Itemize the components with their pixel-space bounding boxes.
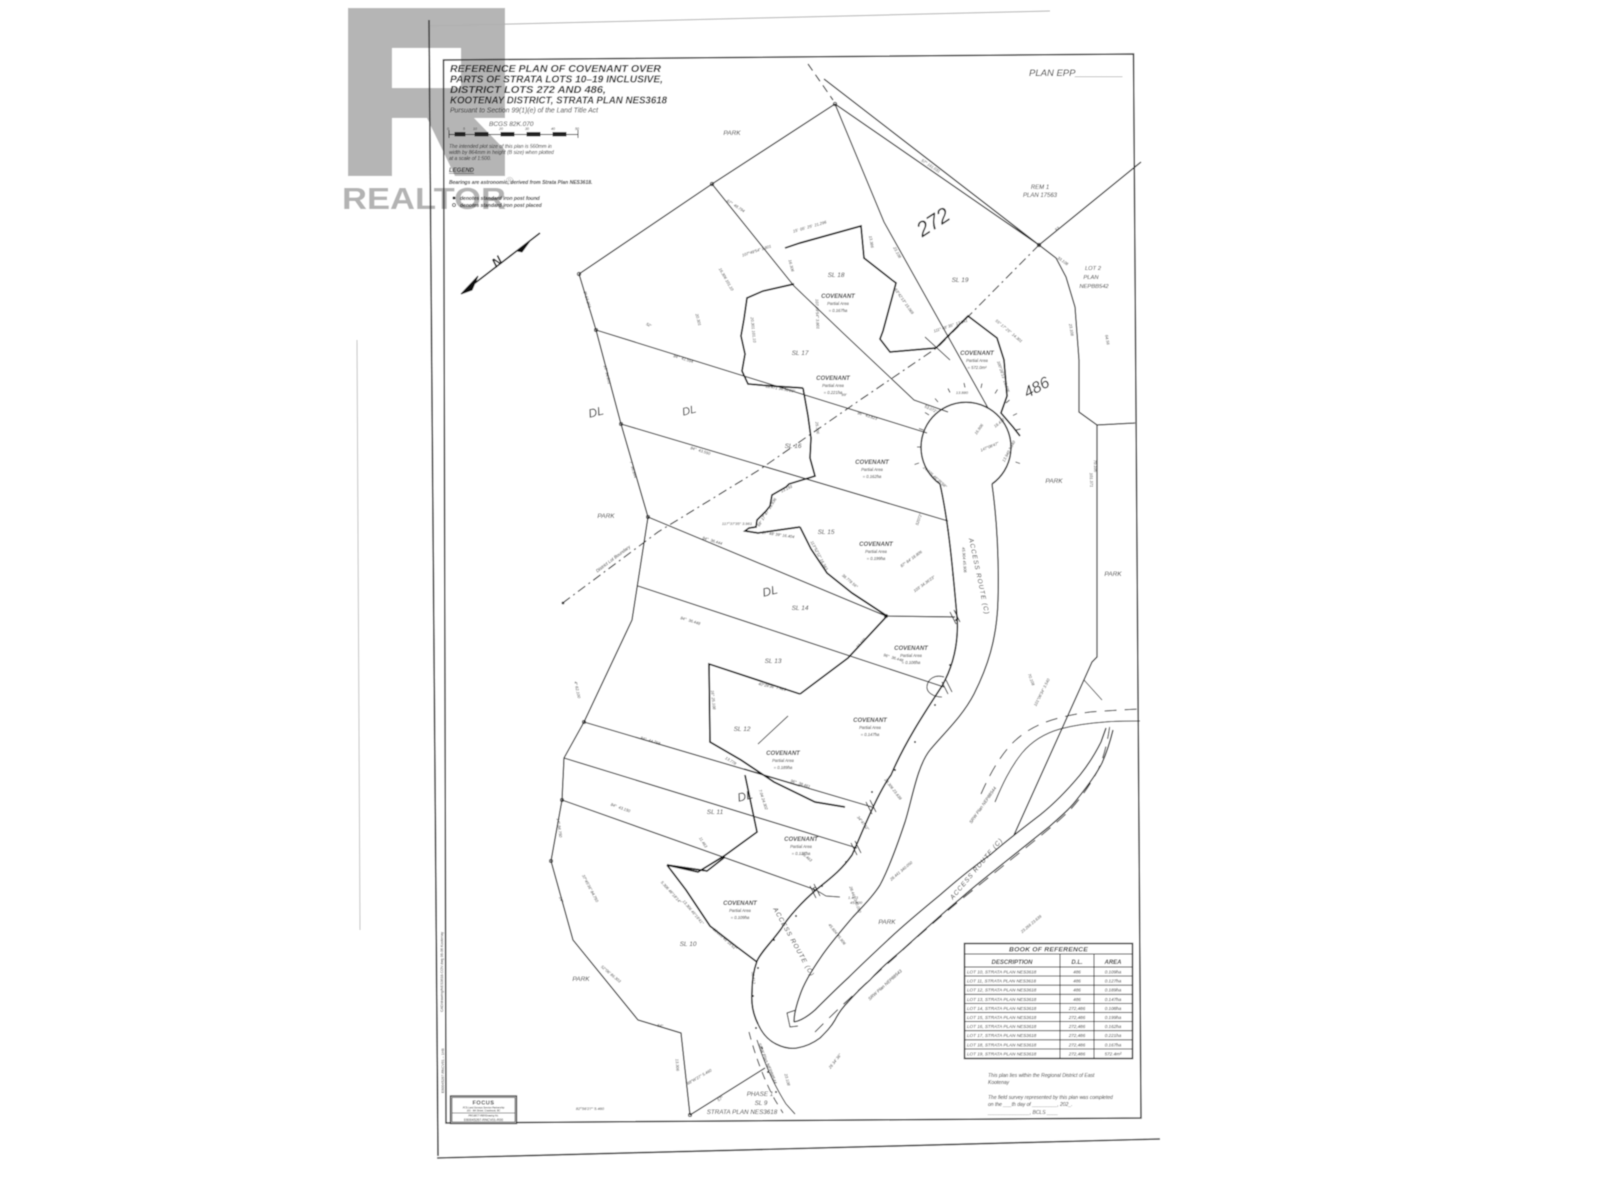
svg-text:This plan lies within the: This plan lies within the Regional Distr… (988, 1073, 1095, 1079)
svg-text:572.4m²: 572.4m² (1105, 1051, 1122, 1056)
svg-text:LOT 19, STRATA PLAN NES3618: LOT 19, STRATA PLAN NES3618 (967, 1051, 1037, 1056)
svg-text:= 572.0m²: = 572.0m² (968, 365, 988, 370)
svg-text:denotes standard iron post: denotes standard iron post found (460, 196, 541, 202)
svg-text:486: 486 (1073, 997, 1081, 1002)
svg-text:Partial Area: Partial Area (790, 844, 812, 849)
svg-text:PARK: PARK (597, 513, 615, 520)
svg-text:0.189ha: 0.189ha (1105, 988, 1122, 993)
svg-text:101.371: 101.371 (1089, 473, 1095, 488)
svg-text:SL 18: SL 18 (828, 272, 845, 279)
svg-text:Partial Area: Partial Area (827, 301, 849, 306)
svg-text:LOT 10, STRATA PLAN NES3618: LOT 10, STRATA PLAN NES3618 (967, 970, 1037, 975)
svg-text:5: 5 (463, 127, 465, 131)
svg-text:PARK: PARK (878, 919, 896, 926)
svg-text:= 0.189ha: = 0.189ha (774, 765, 793, 770)
svg-text:COVENANT: COVENANT (816, 376, 851, 382)
svg-text:COVENANT: COVENANT (853, 718, 888, 724)
svg-text:LEGEND: LEGEND (449, 168, 475, 174)
svg-text:272,486: 272,486 (1068, 1051, 1086, 1056)
svg-text:10: 10 (473, 127, 477, 131)
svg-text:272,486: 272,486 (1068, 1015, 1086, 1020)
svg-text:30: 30 (525, 127, 529, 131)
svg-text:denotes standard iron post: denotes standard iron post placed (460, 203, 543, 209)
svg-text:486: 486 (1073, 979, 1081, 984)
svg-text:AREA: AREA (1103, 960, 1121, 966)
svg-text:Partial Area: Partial Area (966, 358, 988, 363)
svg-text:Partial Area: Partial Area (859, 725, 881, 730)
svg-text:SL 9: SL 9 (755, 1100, 768, 1107)
svg-text:COVENANT: COVENANT (960, 351, 995, 357)
svg-text:SL 10: SL 10 (680, 941, 697, 948)
svg-text:101 - 9th Street, Cranbrook, B: 101 - 9th Street, Cranbrook, BC (467, 1110, 501, 1113)
svg-text:LOT 15, STRATA PLAN NES3618: LOT 15, STRATA PLAN NES3618 (967, 1015, 1037, 1020)
svg-text:0.221ha: 0.221ha (1105, 1033, 1122, 1038)
svg-text:LOT 17, STRATA PLAN NES3618: LOT 17, STRATA PLAN NES3618 (967, 1033, 1037, 1038)
svg-text:COVENANT: COVENANT (894, 646, 929, 652)
svg-text:Partial Area: Partial Area (729, 908, 751, 913)
svg-text:at a scale of 1:500.: at a scale of 1:500. (449, 156, 491, 162)
svg-text:_______________, BCLS ____: _______________, BCLS ____ (987, 1110, 1058, 1116)
svg-text:SL 11: SL 11 (707, 809, 724, 816)
svg-text:0: 0 (447, 127, 449, 131)
svg-text:LOT 14, STRATA PLAN NES3618: LOT 14, STRATA PLAN NES3618 (967, 1006, 1037, 1011)
svg-text:CAD/drawing/NES3618-COV.dwg 0: CAD/drawing/NES3618-COV.dwg 06-06 Kooten… (440, 932, 444, 1012)
svg-text:DESCRIPTION: DESCRIPTION (991, 960, 1033, 966)
svg-text:SL 13: SL 13 (765, 658, 782, 665)
svg-text:0.108ha: 0.108ha (1105, 1006, 1122, 1011)
svg-text:Partial Area: Partial Area (772, 758, 794, 763)
svg-text:0.167ha: 0.167ha (1105, 1042, 1122, 1047)
svg-text:LOT 11, STRATA PLAN NES3618: LOT 11, STRATA PLAN NES3618 (967, 979, 1036, 984)
svg-text:272,486: 272,486 (1068, 1033, 1086, 1038)
svg-text:LOT 13, STRATA PLAN NES3618: LOT 13, STRATA PLAN NES3618 (967, 997, 1037, 1002)
svg-text:BOOK OF REFERENCE: BOOK OF REFERENCE (1009, 947, 1088, 954)
svg-text:LOT 12, STRATA PLAN NES3618: LOT 12, STRATA PLAN NES3618 (967, 988, 1037, 993)
svg-text:NEPBB542: NEPBB542 (1079, 284, 1109, 290)
svg-text:E60045267-RNCV01-R00: E60045267-RNCV01-R00 (464, 1118, 503, 1122)
svg-text:Partial Area: Partial Area (861, 467, 883, 472)
svg-text:COVENANT: COVENANT (723, 901, 758, 907)
svg-text:LOT 16, STRATA PLAN NES3618: LOT 16, STRATA PLAN NES3618 (967, 1024, 1037, 1029)
svg-text:= 0.147ha: = 0.147ha (861, 732, 880, 737)
svg-text:70.106: 70.106 (1093, 460, 1098, 473)
svg-text:= 0.162ha: = 0.162ha (863, 474, 882, 479)
svg-text:SL 12: SL 12 (734, 726, 751, 733)
svg-text:= 0.221ha: = 0.221ha (824, 390, 843, 395)
svg-text:SL 17: SL 17 (792, 350, 809, 357)
svg-text:117°37'35" 3.961: 117°37'35" 3.961 (722, 521, 752, 526)
svg-text:REM 1: REM 1 (1031, 185, 1049, 191)
svg-text:COVENANT: COVENANT (821, 294, 856, 300)
svg-text:0.147ha: 0.147ha (1105, 997, 1122, 1002)
svg-text:13.306: 13.306 (675, 1059, 681, 1072)
svg-text:Partial Area: Partial Area (865, 549, 887, 554)
svg-text:20: 20 (498, 127, 503, 131)
svg-text:COVENANT: COVENANT (855, 460, 890, 466)
svg-text:Bearings are astronomic, de: Bearings are astronomic, derived from St… (449, 180, 592, 186)
svg-text:SL 16: SL 16 (785, 443, 802, 450)
svg-text:PLAN 17563: PLAN 17563 (1023, 193, 1058, 199)
svg-text:Partial Area: Partial Area (822, 383, 844, 388)
svg-text:PARK: PARK (723, 130, 741, 137)
svg-text:LOT 18, STRATA PLAN NES3618: LOT 18, STRATA PLAN NES3618 (967, 1042, 1037, 1047)
svg-text:PARK: PARK (1104, 571, 1122, 578)
svg-text:272,486: 272,486 (1068, 1042, 1086, 1047)
svg-text:PLAN: PLAN (1083, 275, 1099, 281)
svg-text:= 0.199ha: = 0.199ha (867, 556, 886, 561)
svg-text:The field survey represente: The field survey represented by this pla… (988, 1095, 1113, 1101)
svg-text:SL 19: SL 19 (952, 277, 969, 284)
svg-text:50: 50 (575, 127, 579, 131)
svg-text:0.162ha: 0.162ha (1105, 1024, 1122, 1029)
svg-text:0.127ha: 0.127ha (1105, 979, 1122, 984)
svg-text:on the ___th day of _____: on the ___th day of _________, 202_. (988, 1102, 1073, 1108)
svg-text:0.199ha: 0.199ha (1105, 1015, 1122, 1020)
svg-text:= 0.108ha: = 0.108ha (902, 660, 921, 665)
svg-text:E60045267-RNCV01 – 1HB: E60045267-RNCV01 – 1HB (441, 1048, 445, 1093)
svg-text:PHASE 1: PHASE 1 (747, 1091, 774, 1098)
svg-text:107.49'54" 3.801: 107.49'54" 3.801 (814, 299, 820, 329)
svg-text:84°: 84° (657, 1023, 664, 1029)
svg-text:LOT 2: LOT 2 (1085, 266, 1102, 272)
svg-text:Kootenay: Kootenay (988, 1080, 1010, 1086)
svg-text:= 0.109ha: = 0.109ha (731, 915, 750, 920)
svg-text:272,486: 272,486 (1068, 1024, 1086, 1029)
svg-text:99': 99' (841, 392, 846, 397)
svg-text:0.109ha: 0.109ha (1105, 970, 1122, 975)
svg-text:SL 14: SL 14 (792, 605, 809, 612)
svg-text:PARK: PARK (1045, 478, 1063, 485)
svg-text:PLAN EPP_________: PLAN EPP_________ (1029, 68, 1123, 79)
svg-text:D.L.: D.L. (1071, 960, 1083, 966)
svg-text:Pursuant to Section 99(1)(e) o: Pursuant to Section 99(1)(e) of the Land… (450, 108, 599, 115)
svg-text:STRATA PLAN NES3618: STRATA PLAN NES3618 (707, 1109, 778, 1116)
svg-text:40: 40 (551, 127, 555, 131)
svg-text:KOOTENAY DISTRICT, STRATA PLAN: KOOTENAY DISTRICT, STRATA PLAN NES3618 (450, 95, 667, 107)
svg-text:SL 15: SL 15 (818, 529, 835, 536)
svg-text:COVENANT: COVENANT (784, 837, 819, 843)
svg-text:= 0.167ha: = 0.167ha (829, 308, 848, 313)
svg-text:486: 486 (1073, 988, 1081, 993)
svg-text:COVENANT: COVENANT (766, 751, 801, 757)
svg-text:PARK: PARK (572, 976, 590, 983)
svg-text:486: 486 (1073, 970, 1081, 975)
svg-text:COVENANT: COVENANT (859, 542, 894, 548)
svg-text:272,486: 272,486 (1068, 1006, 1086, 1011)
svg-text:82°56'27" 5.460: 82°56'27" 5.460 (576, 1106, 605, 1111)
svg-text:13.880: 13.880 (956, 390, 969, 395)
